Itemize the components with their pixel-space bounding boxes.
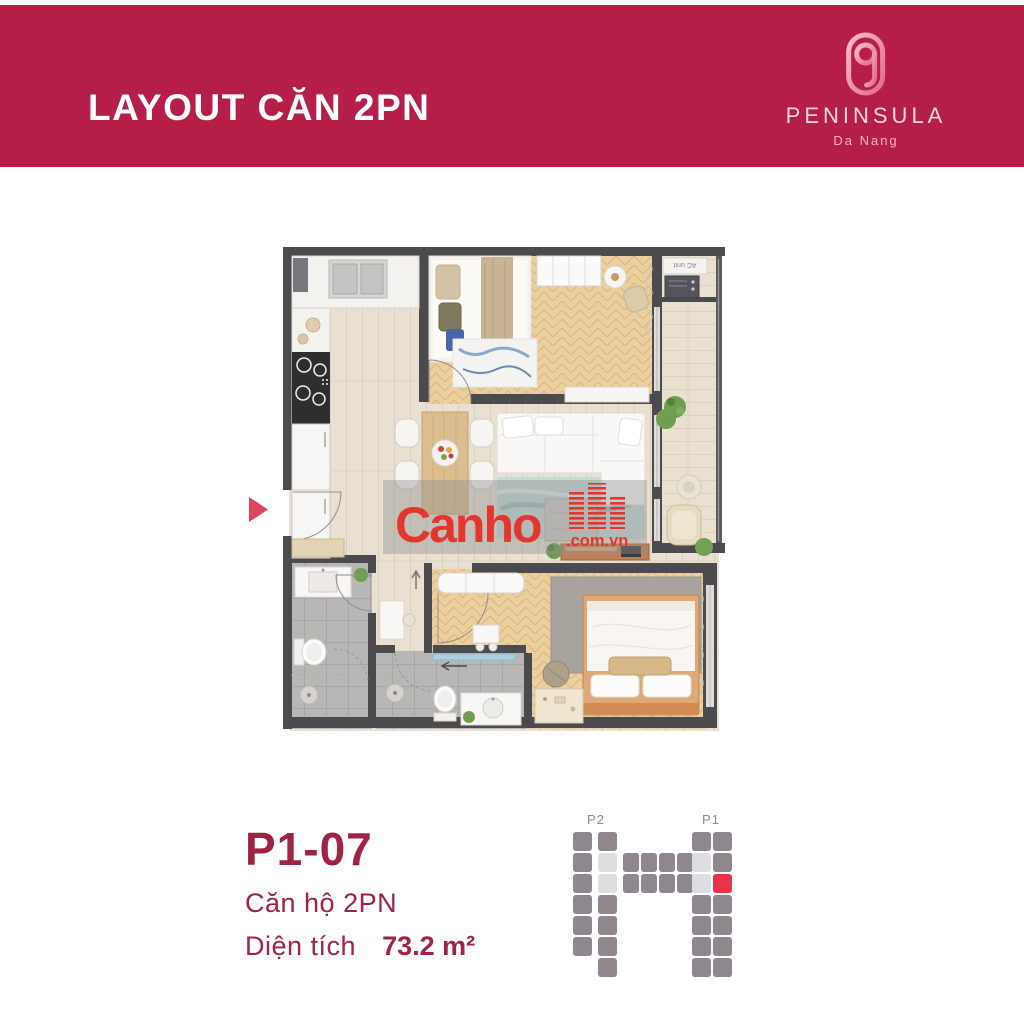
- site-block: [598, 958, 617, 977]
- unit-info: P1-07 Căn hộ 2PN Diện tích73.2 m²: [245, 826, 475, 962]
- dining-chair: [470, 419, 494, 447]
- site-block: [598, 916, 617, 935]
- unit-area-value: 73.2 m²: [382, 931, 475, 961]
- site-block: [692, 958, 711, 977]
- plant-icon: [463, 711, 475, 723]
- entry-marker-icon: [249, 497, 268, 522]
- shoe-cabinet: [292, 539, 344, 557]
- site-block: [692, 874, 711, 893]
- unit-type: Căn hộ 2PN: [245, 888, 475, 919]
- plant-icon: [656, 409, 676, 429]
- site-block: [692, 937, 711, 956]
- site-block: [623, 853, 639, 872]
- site-block: [692, 895, 711, 914]
- watermark-domain: .com.vn: [566, 532, 628, 550]
- brand-name: PENINSULA: [786, 103, 947, 129]
- site-block: [713, 937, 732, 956]
- tower-label-p2: P2: [587, 812, 605, 827]
- page: LAYOUT CĂN 2PN PENINSULA Da Nang: [0, 0, 1024, 1024]
- page-title: LAYOUT CĂN 2PN: [88, 89, 430, 126]
- site-block: [692, 832, 711, 851]
- rug-1: [453, 339, 537, 387]
- site-block: [692, 916, 711, 935]
- site-block: [573, 937, 592, 956]
- site-block: [677, 853, 693, 872]
- site-block: [713, 853, 732, 872]
- unit-code: P1-07: [245, 826, 475, 872]
- ac-unit: [665, 276, 699, 298]
- site-block: [641, 874, 657, 893]
- fruit-bowl: [432, 440, 458, 466]
- stool: [403, 614, 415, 626]
- site-block: [573, 874, 592, 893]
- fridge: [293, 258, 308, 292]
- site-block: [598, 937, 617, 956]
- brand-logo: PENINSULA Da Nang: [786, 32, 947, 148]
- watermark-name: Canho: [395, 497, 541, 553]
- site-block: [573, 832, 592, 851]
- plant-icon: [695, 538, 713, 556]
- site-block: [713, 916, 732, 935]
- site-block: [659, 874, 675, 893]
- dining-chair: [395, 419, 419, 447]
- bench: [535, 689, 583, 723]
- site-block: [573, 895, 592, 914]
- site-block: [692, 853, 711, 872]
- floorplan-drawing: AC unit: [283, 247, 725, 737]
- site-block: [598, 874, 617, 893]
- console-desk: [380, 601, 404, 639]
- site-diagram-blocks: [573, 832, 732, 977]
- site-block: [677, 874, 693, 893]
- site-block: [623, 874, 639, 893]
- site-block: [573, 853, 592, 872]
- wardrobe-2: [438, 573, 524, 593]
- site-diagram: P2 P1: [573, 808, 753, 983]
- site-block: [598, 853, 617, 872]
- watermark-building-icon: [588, 483, 606, 529]
- site-block: [713, 895, 732, 914]
- low-cabinet: [565, 387, 649, 402]
- site-block: [598, 832, 617, 851]
- towel-rail: [433, 654, 515, 660]
- site-block-highlight: [713, 874, 732, 893]
- unit-area: Diện tích73.2 m²: [245, 931, 475, 962]
- ac-unit-label: AC unit: [673, 261, 696, 268]
- site-block: [713, 958, 732, 977]
- small-desk: [473, 625, 499, 643]
- brand-location: Da Nang: [833, 133, 898, 148]
- site-block: [641, 853, 657, 872]
- site-block: [573, 916, 592, 935]
- site-block: [659, 853, 675, 872]
- watermark: Canho .com.vn: [383, 480, 647, 554]
- site-block: [713, 832, 732, 851]
- unit-area-label: Diện tích: [245, 931, 356, 961]
- watermark-building-icon: [569, 491, 584, 529]
- site-block: [598, 895, 617, 914]
- watermark-building-icon: [610, 497, 625, 529]
- header-banner: LAYOUT CĂN 2PN PENINSULA Da Nang: [0, 5, 1024, 167]
- peninsula-logo-icon: [845, 32, 887, 96]
- tower-label-p1: P1: [702, 812, 720, 827]
